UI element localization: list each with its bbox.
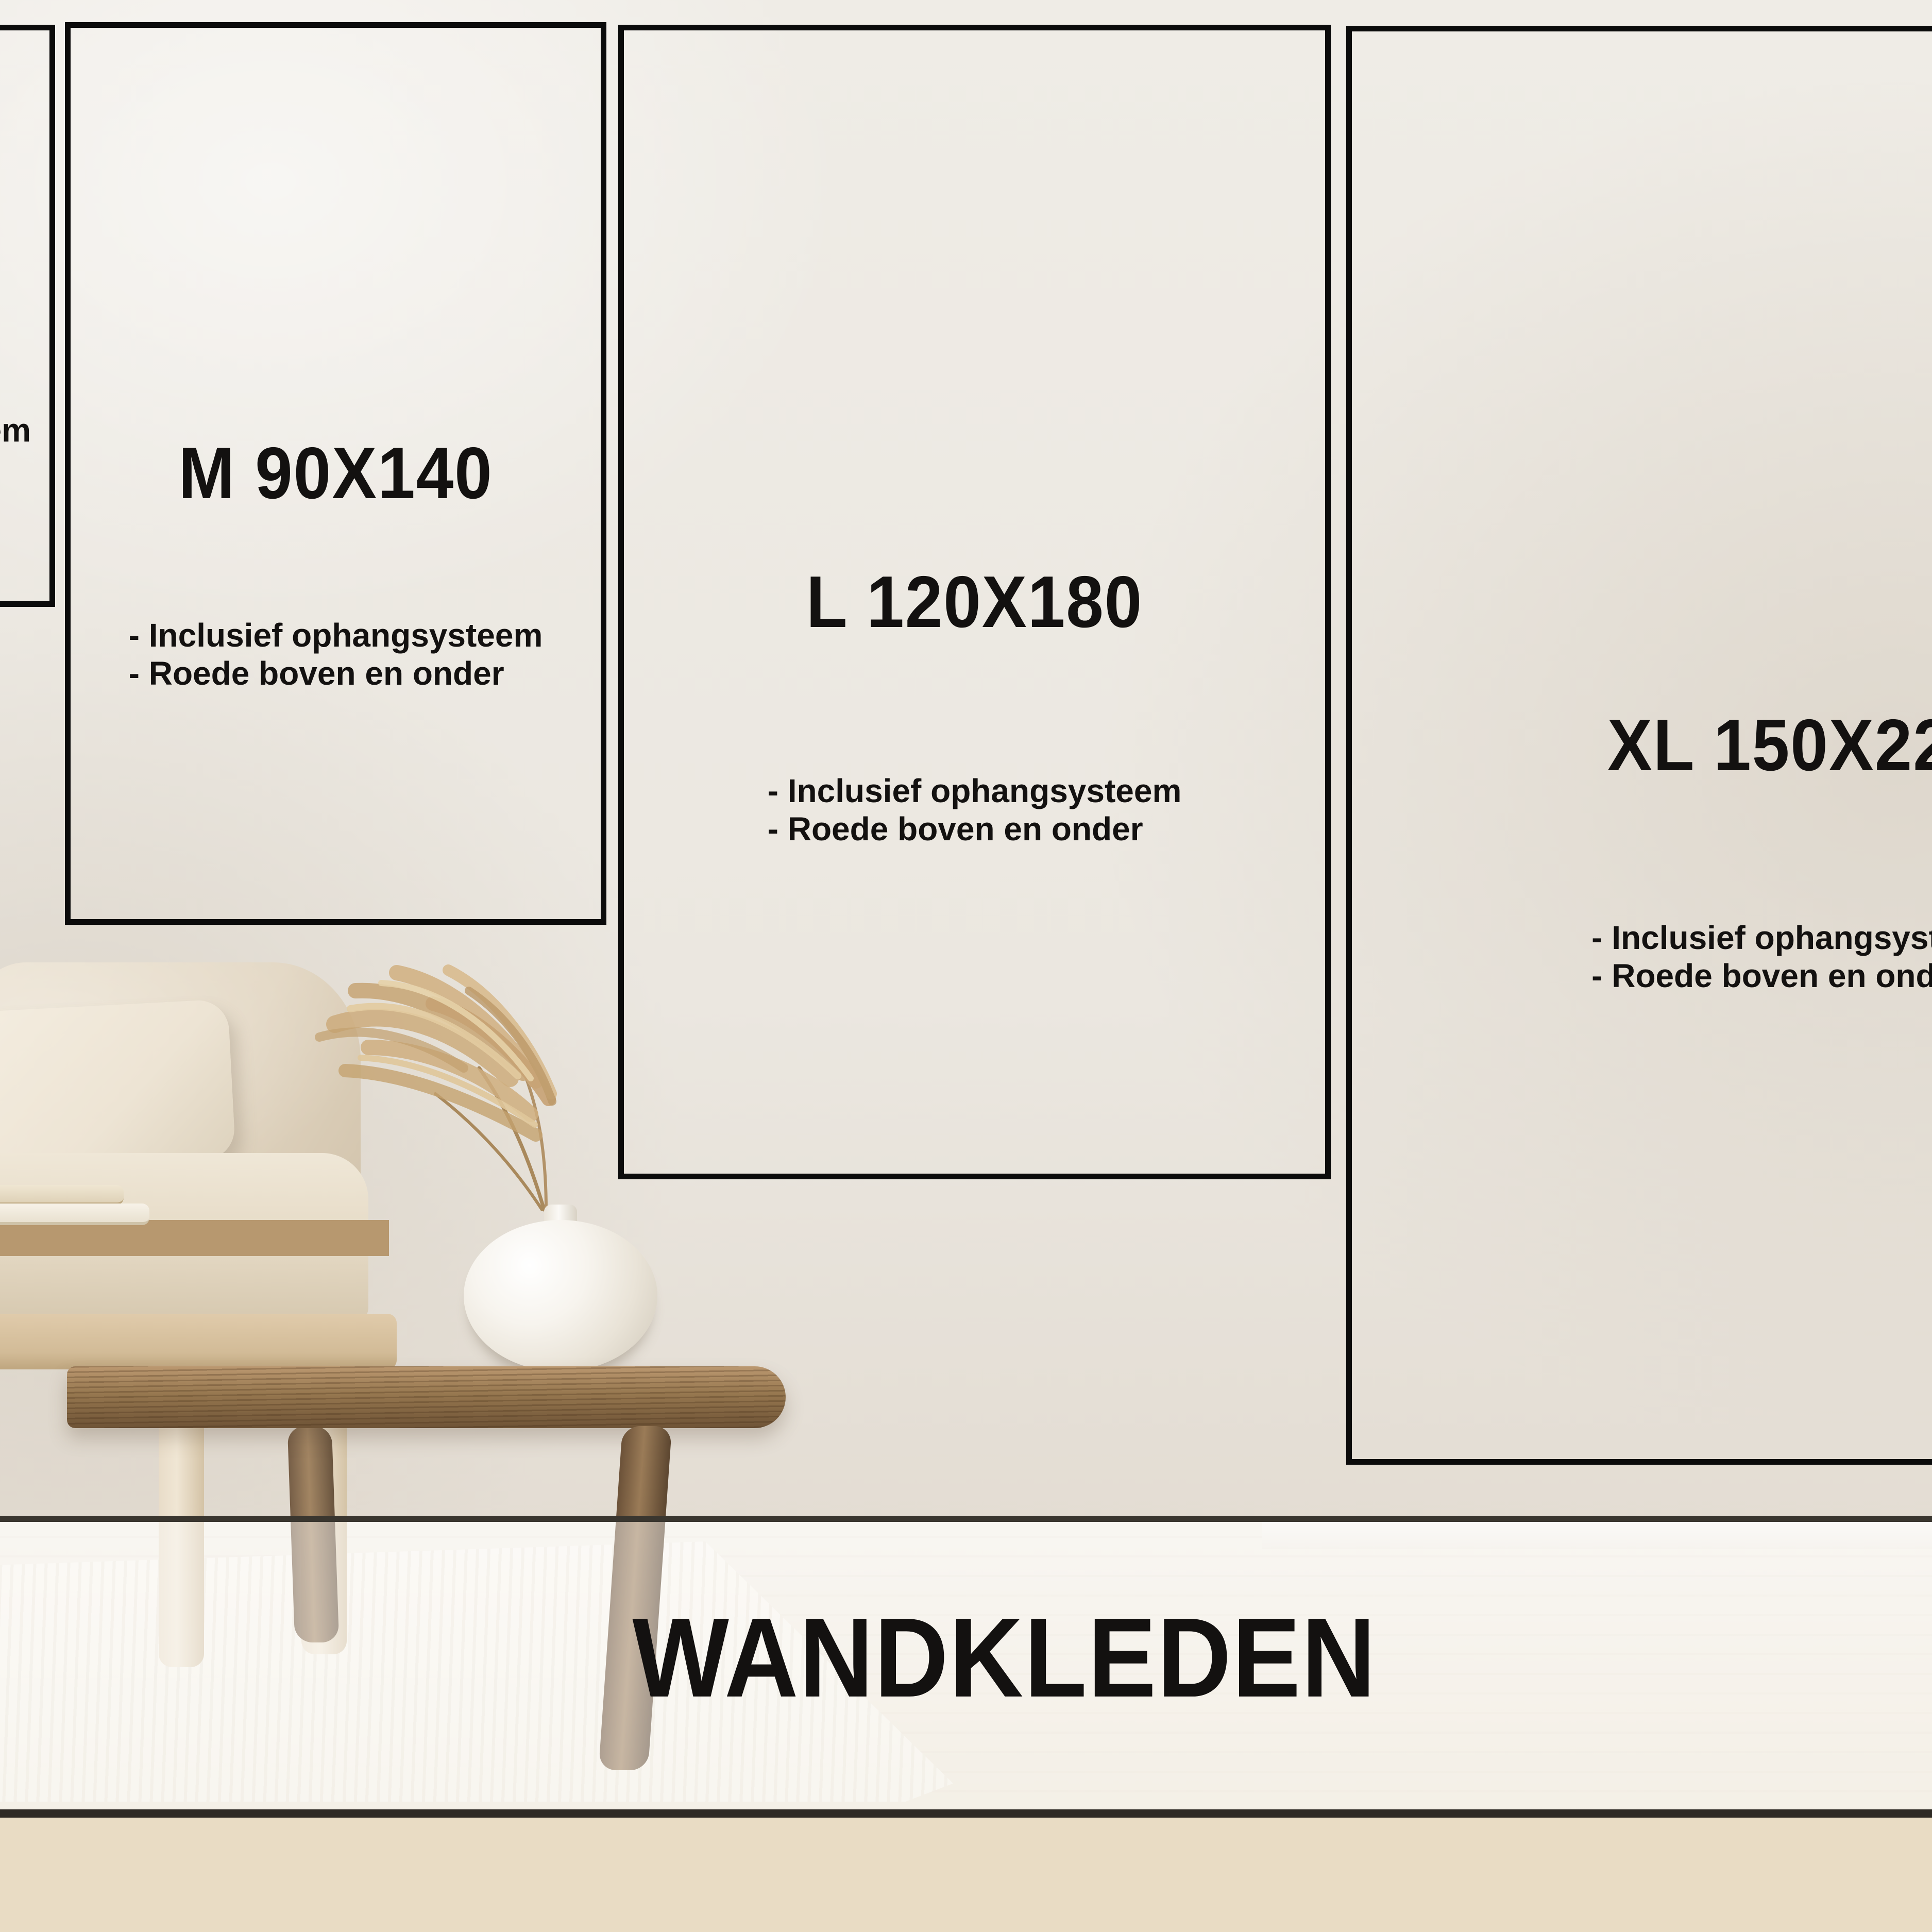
feature-line: - Inclusief ophangsysteem [768,772,1182,810]
coffee-table-top [67,1366,786,1428]
sofa-pillow [0,999,236,1172]
size-box-label: XL 150X220 [1387,703,1932,788]
mockup-canvas: WANDKLEDEN em M 90X140 - Inclusief ophan… [0,0,1932,1932]
pampas-grass [289,942,639,1251]
size-box-features: - Inclusief ophangsysteem - Roede boven … [129,616,543,692]
foreground-wood-floor [0,1818,1932,1932]
size-box-s-text-fragment: em [0,411,31,449]
book [0,1204,149,1225]
size-box-l: L 120X180 - Inclusief ophangsysteem - Ro… [618,25,1331,1179]
book [0,1185,124,1205]
size-box-m: M 90X140 - Inclusief ophangsysteem - Roe… [65,22,606,925]
feature-line: - Roede boven en onder [768,810,1182,848]
size-box-features: - Inclusief ophangsysteem - Roede boven … [1591,919,1932,995]
size-box-features: - Inclusief ophangsysteem - Roede boven … [768,772,1182,848]
vase [464,1220,657,1371]
size-box-s: em [0,25,55,607]
caption-band: WANDKLEDEN [0,1516,1932,1818]
feature-line: - Inclusief ophangsysteem [1591,919,1932,957]
feature-line: - Roede boven en onder [129,654,543,692]
size-box-label: L 120X180 [652,560,1297,645]
sofa-bench-base [0,1314,397,1369]
size-box-label: M 90X140 [92,431,580,516]
page-title: WANDKLEDEN [633,1593,1377,1723]
size-box-xl: XL 150X220 - Inclusief ophangsysteem - R… [1346,26,1932,1465]
feature-line: - Inclusief ophangsysteem [129,616,543,654]
feature-line: - Roede boven en onder [1591,957,1932,995]
